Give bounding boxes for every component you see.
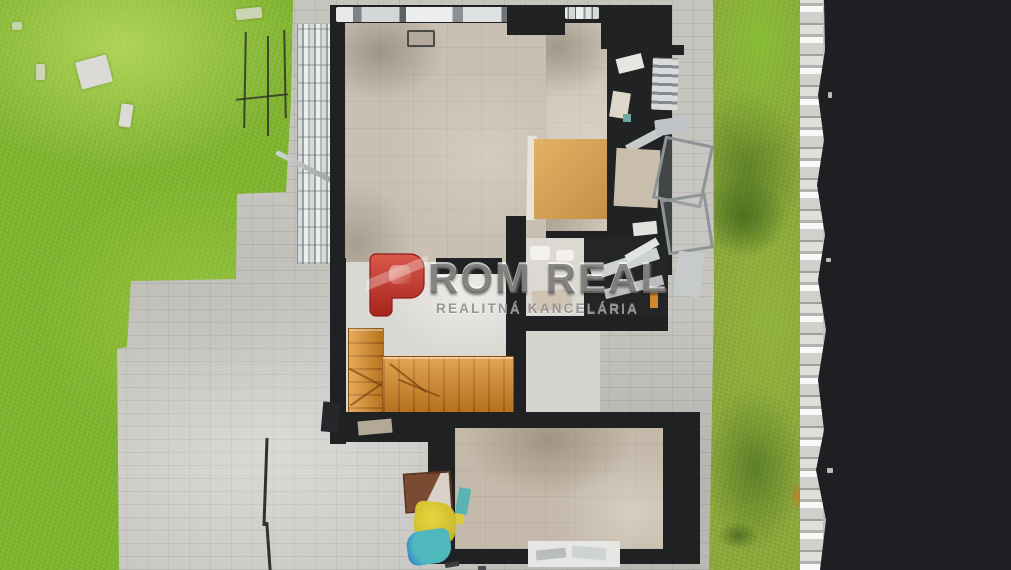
debris-teal-bit xyxy=(623,114,631,122)
debris-beige-slab xyxy=(614,148,661,208)
garden-hose xyxy=(262,438,268,526)
brand-text: ROM REAL xyxy=(428,255,668,303)
prom-real-watermark: P ROM REAL REALITNÁ KANCELÁRIA xyxy=(366,249,671,327)
wall-stub xyxy=(668,45,684,55)
ochre-floor-patch xyxy=(534,139,612,219)
lower-window-opening xyxy=(528,541,620,567)
dark-object xyxy=(321,401,341,432)
void-speck xyxy=(826,258,831,262)
floor-opening-hatch xyxy=(407,30,435,47)
debris-gray-patch xyxy=(235,7,262,21)
top-wall-notch xyxy=(507,5,565,35)
foil-top-wall-small xyxy=(565,7,599,19)
void-speck xyxy=(828,92,832,98)
stair-winder-line xyxy=(398,379,440,397)
debris-white-board xyxy=(616,53,645,74)
debris-speck xyxy=(12,22,22,30)
debris-gray-bit xyxy=(36,64,45,80)
metal-piece xyxy=(654,116,690,137)
lower-room-floor xyxy=(455,428,663,549)
mid-light-slab xyxy=(526,331,600,412)
scaffold-parts xyxy=(651,58,679,111)
scaffolding-left xyxy=(297,24,333,264)
logo-p-icon xyxy=(366,252,428,318)
fence-post xyxy=(267,36,269,136)
stair-winder-line xyxy=(350,382,384,407)
debris-white-strip xyxy=(118,103,133,127)
staircase-lower-flight xyxy=(382,356,514,415)
void-speck xyxy=(827,468,833,473)
aerial-scan-photo: P ROM REAL REALITNÁ KANCELÁRIA xyxy=(0,0,1011,570)
staircase-upper-flight xyxy=(348,328,384,415)
pavement-speck xyxy=(445,561,460,568)
debris-white-bit xyxy=(632,221,657,236)
pavement-speck xyxy=(478,566,486,570)
unscanned-void-area xyxy=(806,0,1011,570)
garden-hose xyxy=(265,522,271,570)
top-wall-notch xyxy=(601,5,661,49)
debris-teal-spot xyxy=(455,487,471,515)
brand-subtitle: REALITNÁ KANCELÁRIA xyxy=(436,301,639,316)
lawn-right-strip xyxy=(705,0,815,570)
debris-beige-spot xyxy=(357,419,392,436)
metal-panel xyxy=(673,251,704,298)
debris-metal xyxy=(572,546,607,561)
scaffold-frame xyxy=(660,193,714,256)
debris-white-sheet xyxy=(75,54,113,89)
debris-metal xyxy=(536,547,567,560)
